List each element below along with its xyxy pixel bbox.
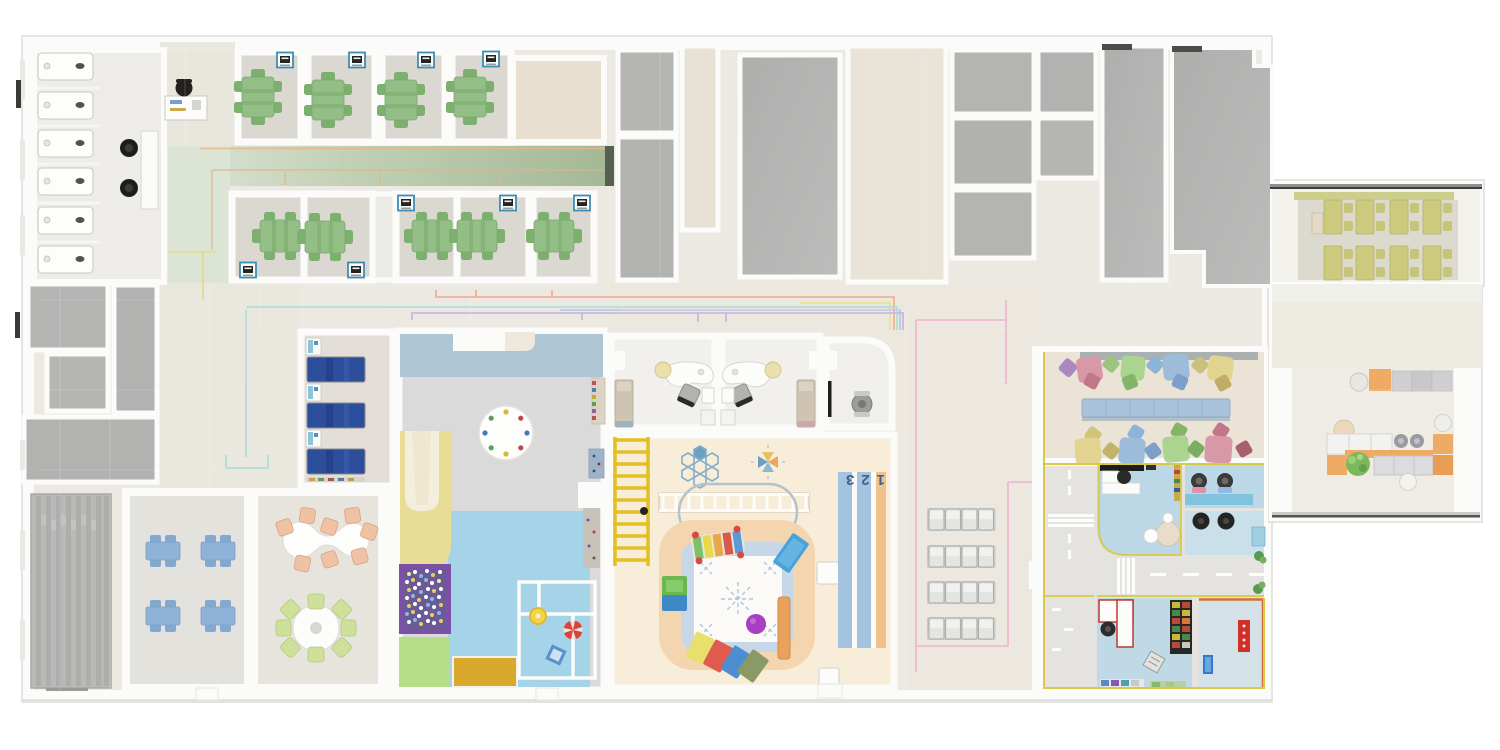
svg-text:123: 123 [839,471,885,488]
